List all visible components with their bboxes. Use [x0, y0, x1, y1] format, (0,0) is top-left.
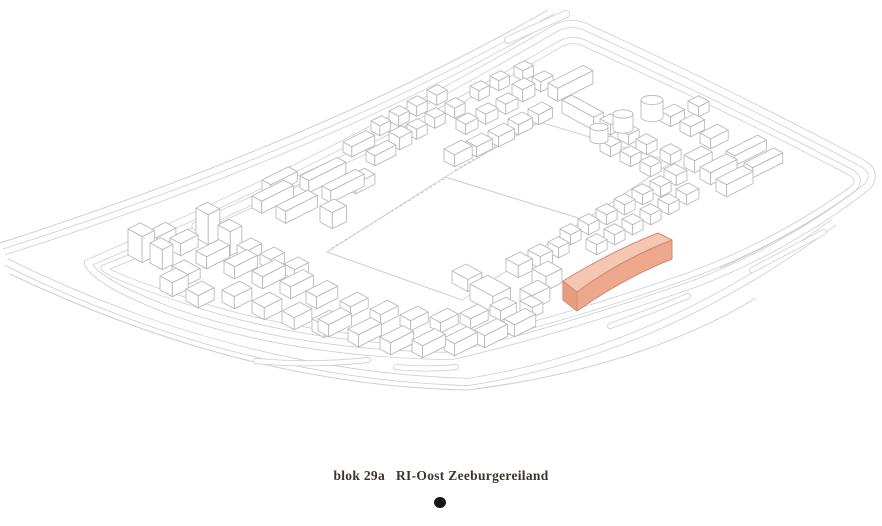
caption: blok 29a RI-Oost Zeeburgereiland	[0, 467, 882, 485]
site-axonometric-drawing	[0, 0, 882, 430]
location-marker-dot	[434, 497, 446, 508]
caption-project-label: RI-Oost Zeeburgereiland	[396, 467, 549, 485]
page: blok 29a RI-Oost Zeeburgereiland	[0, 0, 882, 526]
caption-block-label: blok 29a	[333, 467, 385, 485]
